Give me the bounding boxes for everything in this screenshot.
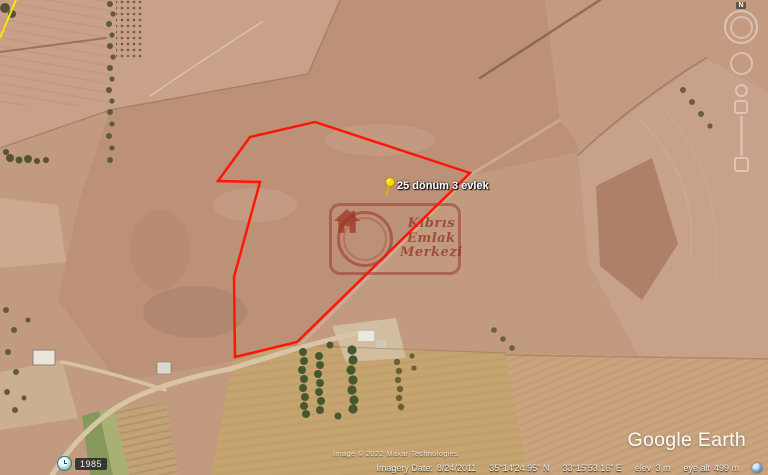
streaming-indicator-icon (752, 463, 762, 473)
historical-imagery-badge[interactable]: 1985 (57, 456, 107, 471)
eye-altitude-readout: eye alt 499 m (683, 463, 739, 473)
imagery-date-label: Imagery Date: (376, 463, 433, 473)
historical-year[interactable]: 1985 (75, 458, 107, 470)
elev-label: elev (635, 463, 652, 473)
satellite-imagery (0, 0, 768, 475)
imagery-date-value: 8/24/2011 (437, 463, 476, 473)
latitude-readout: 35°14'24.95" N (489, 463, 549, 473)
move-joystick[interactable] (730, 52, 753, 75)
fields-layer (0, 0, 768, 475)
status-bar: Imagery Date: 8/24/2011 35°14'24.95" N 3… (376, 463, 762, 473)
clock-icon[interactable] (57, 456, 72, 471)
zoom-slider-top-stop[interactable] (734, 100, 748, 114)
google-earth-viewport[interactable]: Kıbrıs Emlak Merkezi 25 dönüm 3 evlek N … (0, 0, 768, 475)
zoom-in-button[interactable] (735, 84, 748, 97)
north-indicator[interactable]: N (736, 2, 745, 9)
zoom-slider-track[interactable] (740, 116, 743, 156)
placemark-label[interactable]: 25 dönüm 3 evlek (397, 180, 489, 192)
look-joystick[interactable] (724, 10, 758, 44)
copyright-notice: Image © 2022 Maxar Technologies (333, 449, 458, 458)
nav-controls: N (724, 2, 758, 172)
eye-alt-value: 499 m (714, 463, 739, 473)
elev-value: 3 m (655, 463, 670, 473)
google-earth-logo: Google Earth (627, 429, 746, 452)
imagery-date: Imagery Date: 8/24/2011 (376, 463, 476, 473)
longitude-readout: 33°15'53.16" E (562, 463, 622, 473)
elevation-readout: elev 3 m (635, 463, 671, 473)
look-joystick-knob[interactable] (730, 16, 753, 39)
eye-alt-label: eye alt (683, 463, 710, 473)
zoom-slider-handle[interactable] (734, 157, 749, 172)
